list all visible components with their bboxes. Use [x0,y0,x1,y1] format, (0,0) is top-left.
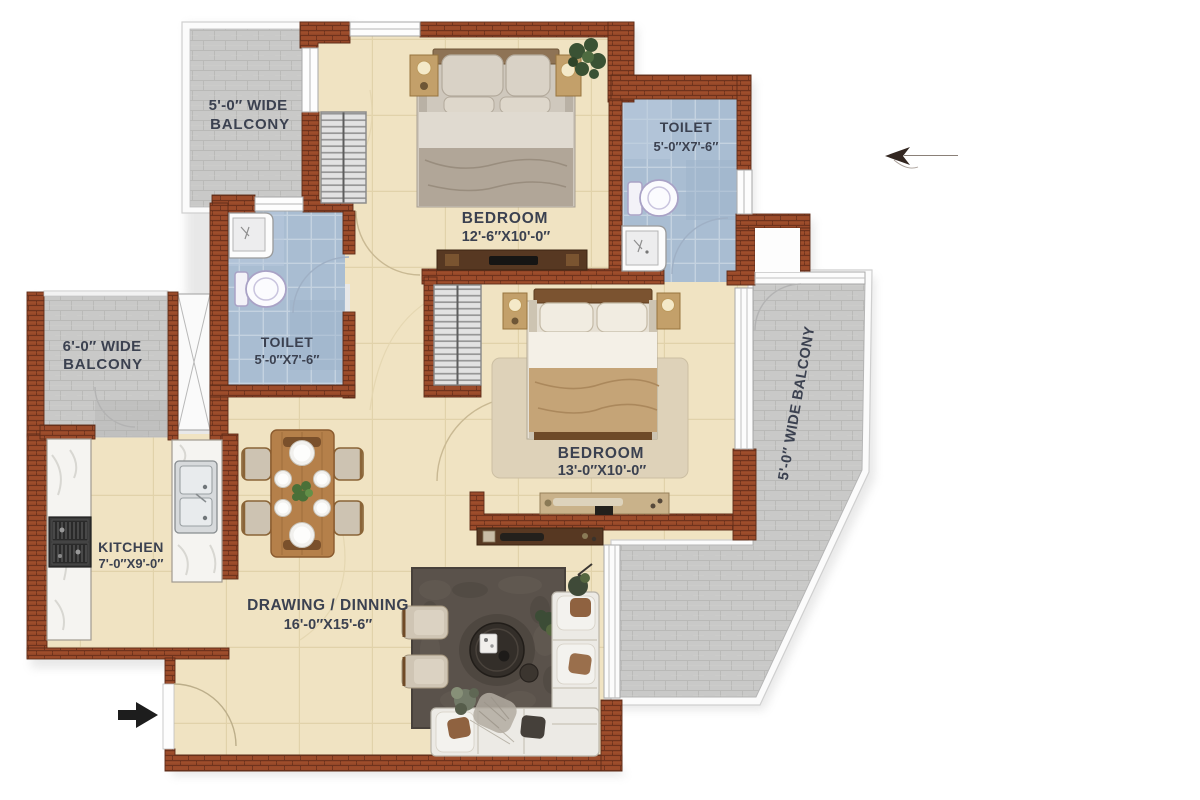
svg-text:12'-6″X10'-0″: 12'-6″X10'-0″ [462,229,551,245]
svg-text:BEDROOM: BEDROOM [558,445,645,462]
svg-text:5'-0″X7'-6″: 5'-0″X7'-6″ [255,352,320,367]
svg-text:TOILET: TOILET [261,334,314,350]
svg-text:TOILET: TOILET [660,119,713,135]
svg-text:DRAWING / DINNING: DRAWING / DINNING [247,597,409,614]
svg-text:5'-0″X7'-6″: 5'-0″X7'-6″ [654,139,719,154]
svg-text:BALCONY: BALCONY [63,356,143,373]
svg-text:7'-0″X9'-0″: 7'-0″X9'-0″ [99,556,164,571]
svg-text:BEDROOM: BEDROOM [462,210,549,227]
svg-text:6'-0″ WIDE: 6'-0″ WIDE [63,338,142,355]
svg-text:16'-0″X15'-6″: 16'-0″X15'-6″ [284,617,373,633]
svg-text:BALCONY: BALCONY [210,116,290,133]
svg-text:5'-0″ WIDE: 5'-0″ WIDE [209,97,288,114]
svg-text:KITCHEN: KITCHEN [98,539,164,555]
svg-text:13'-0″X10'-0″: 13'-0″X10'-0″ [558,463,647,479]
